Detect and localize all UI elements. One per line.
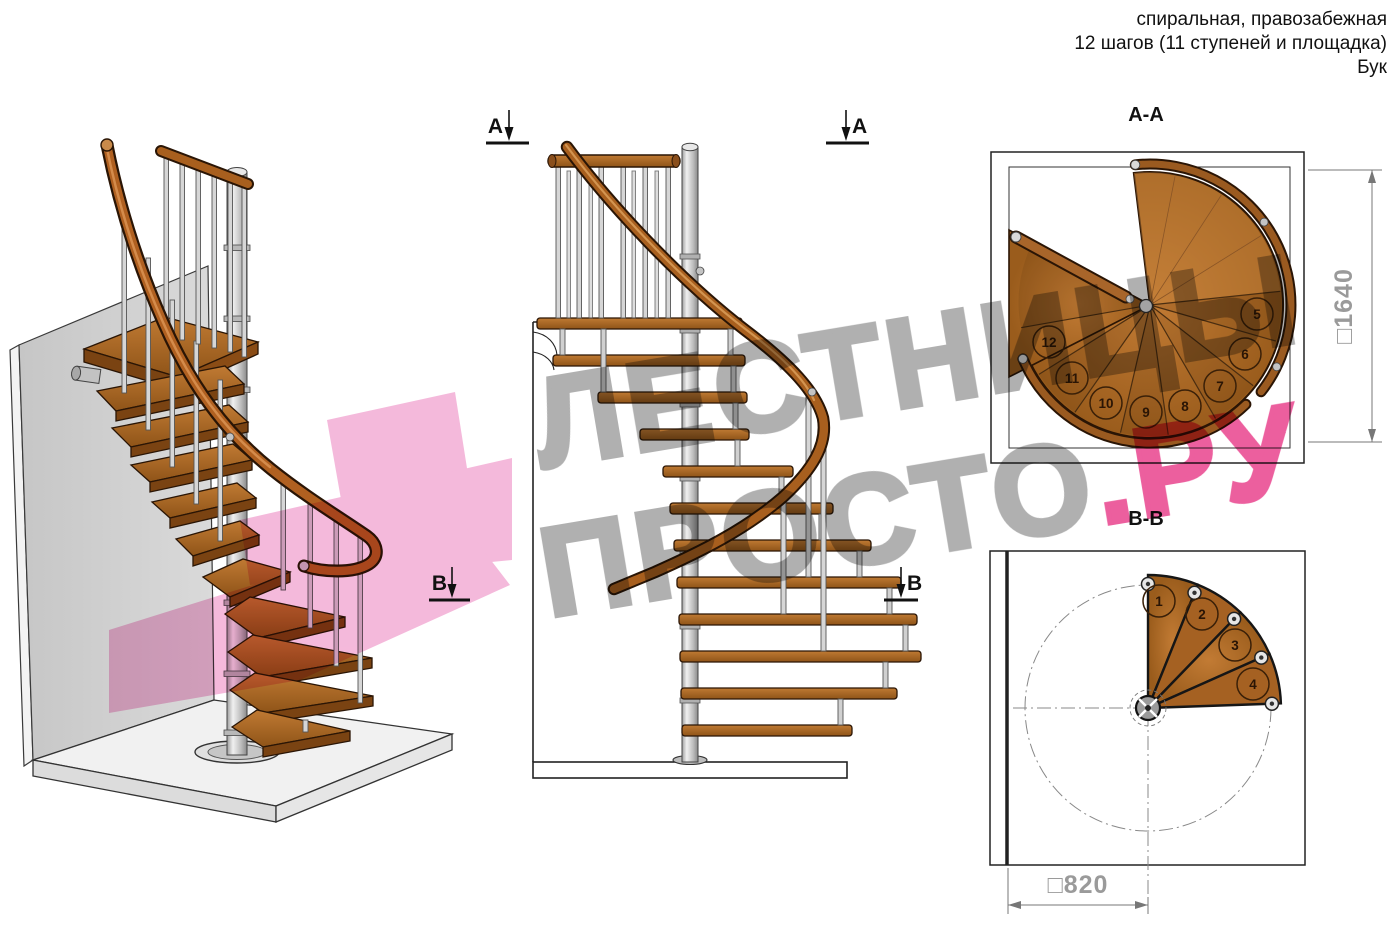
marker-arrow-icon: [505, 127, 514, 141]
marker-arrow-icon: [842, 127, 851, 141]
plan-bb-pole-hub: [1130, 690, 1166, 726]
dimension-label-1640: □1640: [1330, 268, 1358, 344]
marker-letter: А: [488, 115, 503, 138]
section-marker-a-right: А: [826, 110, 869, 143]
marker-letter: А: [852, 115, 867, 138]
spec-steps: 12 шагов (11 ступеней и площадка): [1074, 32, 1387, 56]
section-plan-bb: В-В: [990, 508, 1305, 914]
spec-material: Бук: [1074, 56, 1387, 80]
svg-text:1: 1: [1155, 594, 1163, 609]
plan-aa-dimension: □1640: [1308, 170, 1382, 442]
svg-text:3: 3: [1231, 638, 1239, 653]
screw: [1255, 651, 1268, 664]
marker-letter: В: [907, 572, 922, 595]
handrail-connector: [696, 267, 704, 275]
screw: [1265, 697, 1278, 710]
svg-text:4: 4: [1249, 677, 1257, 692]
plan-bb-tread-fan: [1148, 575, 1281, 708]
spec-type: спиральная, правозабежная: [1074, 8, 1387, 32]
dimension-label-820: □820: [1048, 871, 1109, 899]
marker-arrow-icon: [897, 584, 906, 598]
handrail-connector: [226, 433, 234, 441]
pole-cap-elevation: [682, 143, 698, 151]
screw: [1228, 612, 1241, 625]
plan-bb-dimension: □820: [1008, 868, 1148, 914]
drawing-spec-header: спиральная, правозабежная 12 шагов (11 с…: [1074, 8, 1387, 80]
plan-aa-title: А-А: [1128, 104, 1164, 126]
section-marker-a-left: А: [486, 110, 529, 143]
handrail-start-cap: [101, 139, 113, 151]
marker-letter: В: [432, 572, 447, 595]
screw: [1188, 586, 1201, 599]
technical-drawing: А-А: [0, 0, 1400, 939]
svg-text:2: 2: [1198, 607, 1206, 622]
